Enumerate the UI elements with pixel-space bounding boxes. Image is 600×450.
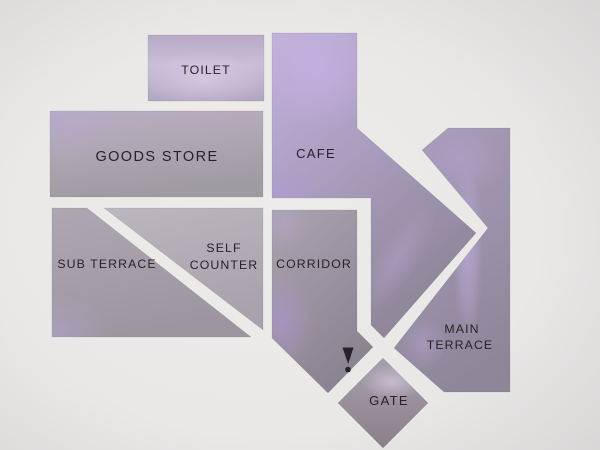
photo-vignette [0,0,600,450]
floor-map-canvas: TOILET GOODS STORE CAFE SUB TERRACE SELF… [0,0,600,450]
floor-map-sign: TOILET GOODS STORE CAFE SUB TERRACE SELF… [0,0,600,450]
